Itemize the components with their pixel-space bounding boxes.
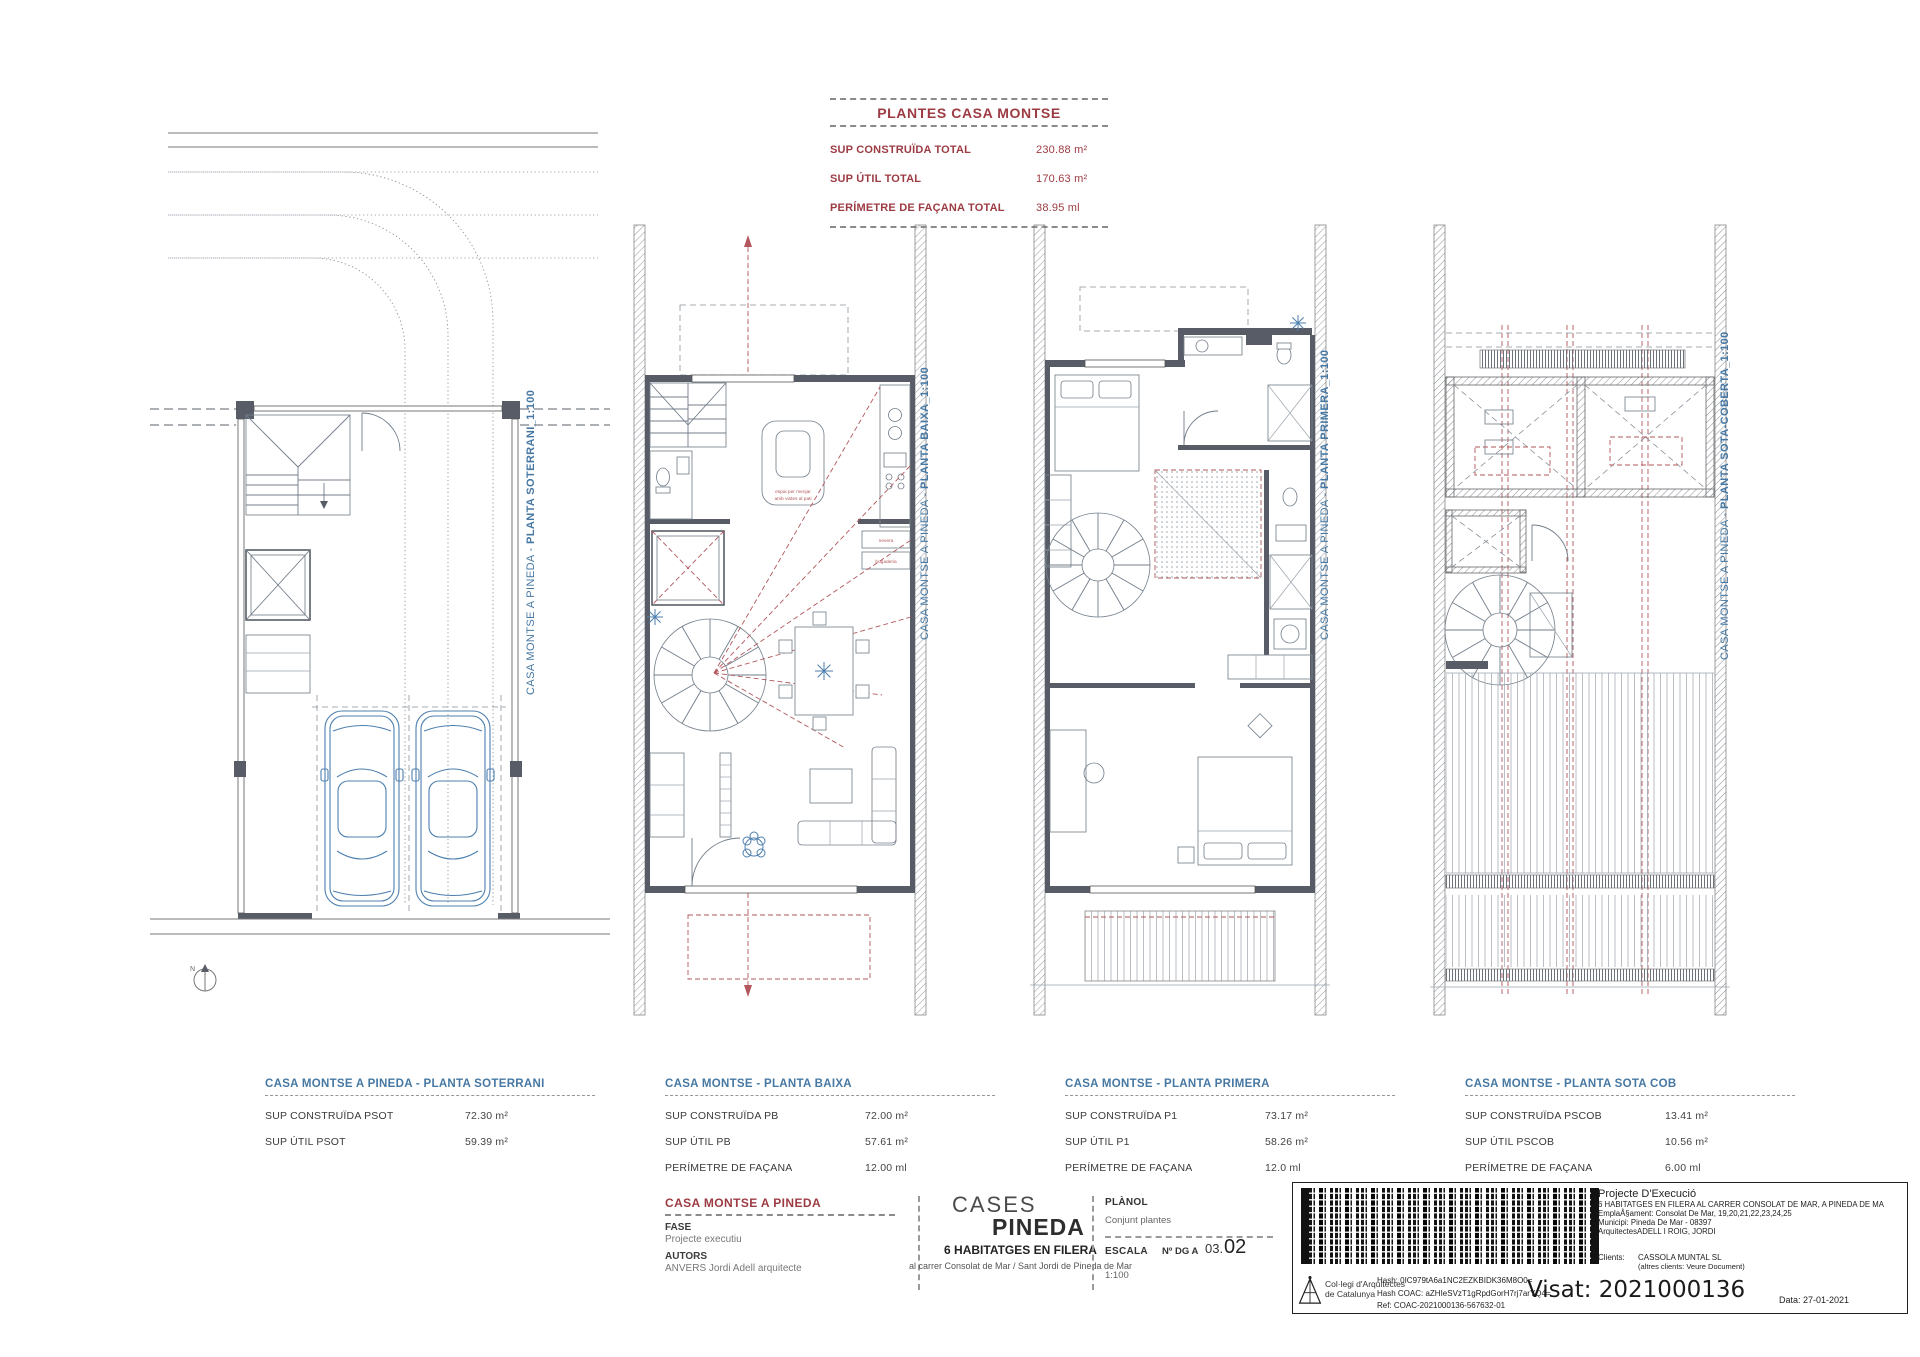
plan3-label-prefix: CASA MONTSE A PINEDA -: [1319, 489, 1331, 640]
table-header: CASA MONTSE - PLANTA BAIXA: [665, 1078, 995, 1095]
row-value: 12.0 ml: [1265, 1162, 1395, 1174]
plan4-vertical-label: CASA MONTSE A PINEDA - PLANTA SOTA-COBER…: [1718, 331, 1732, 660]
plant-icon: [815, 662, 833, 680]
project-info-block: CASA MONTSE A PINEDA FASE Projecte execu…: [665, 1196, 910, 1274]
table-primera: CASA MONTSE - PLANTA PRIMERA SUP CONSTRU…: [1065, 1078, 1395, 1174]
row-label: SUP CONSTRUÏDA PSOT: [265, 1110, 465, 1122]
row-label: SUP ÚTIL PB: [665, 1136, 865, 1148]
total-row: SUP CONSTRUÏDA TOTAL 230.88 m²: [830, 144, 1108, 156]
divider: [665, 1214, 895, 1216]
row-value: 10.56 m²: [1665, 1136, 1795, 1148]
table-row: SUP ÚTIL PSOT 59.39 m²: [265, 1136, 595, 1148]
north-arrow-icon: N: [190, 964, 216, 991]
plan4-label-prefix: CASA MONTSE A PINEDA -: [1719, 509, 1731, 660]
divider: [1065, 1095, 1395, 1096]
snowflake-icon: [647, 609, 663, 625]
row-label: SUP ÚTIL PSOT: [265, 1136, 465, 1148]
project-name: CASA MONTSE A PINEDA: [665, 1196, 910, 1210]
row-value: 59.39 m²: [465, 1136, 595, 1148]
coac-logo-icon: [1297, 1275, 1323, 1307]
table-soterrani: CASA MONTSE A PINEDA - PLANTA SOTERRANI …: [265, 1078, 595, 1148]
autors-value: ANVERS Jordi Adell arquitecte: [665, 1263, 910, 1274]
planol-label: PLÀNOL: [1105, 1197, 1148, 1208]
table-baixa: CASA MONTSE - PLANTA BAIXA SUP CONSTRUÏD…: [665, 1078, 995, 1174]
table-header: CASA MONTSE A PINEDA - PLANTA SOTERRANI: [265, 1078, 595, 1095]
plan1-label-title: PLANTA SOTERRANI_1:100: [525, 390, 537, 544]
total-row: PERÍMETRE DE FAÇANA TOTAL 38.95 ml: [830, 202, 1108, 214]
divider: [665, 1095, 995, 1096]
divider: [1092, 1196, 1094, 1290]
total-label: SUP CONSTRUÏDA TOTAL: [830, 144, 1036, 156]
stamp-project-line: 6 HABITATGES EN FILERA AL CARRER CONSOLA…: [1598, 1200, 1898, 1209]
total-value: 170.63 m²: [1036, 173, 1108, 185]
total-value: 230.88 m²: [1036, 144, 1108, 156]
car-1: [321, 711, 403, 906]
clients-value: CASSOLA MUNTAL SL: [1638, 1253, 1722, 1262]
snowflake-icon: [1290, 315, 1306, 331]
sheet-title: PLANTES CASA MONTSE: [830, 100, 1108, 125]
coac-visa-stamp: Col·legi d'Arquitectes de Catalunya Hash…: [1292, 1182, 1908, 1314]
row-value: 58.26 m²: [1265, 1136, 1395, 1148]
row-label: PERÍMETRE DE FAÇANA: [1065, 1162, 1265, 1174]
row-label: SUP ÚTIL PSCOB: [1465, 1136, 1665, 1148]
svg-text:espai per menjar: espai per menjar: [775, 489, 811, 495]
clients-note: (altres clients: Veure Document): [1638, 1262, 1745, 1271]
table-row: PERÍMETRE DE FAÇANA 12.0 ml: [1065, 1162, 1395, 1174]
row-label: PERÍMETRE DE FAÇANA: [665, 1162, 865, 1174]
table-row: SUP ÚTIL PB 57.61 m²: [665, 1136, 995, 1148]
table-row: SUP CONSTRUÏDA PSCOB 13.41 m²: [1465, 1110, 1795, 1122]
svg-text:nevera: nevera: [879, 538, 894, 544]
plan1-label-prefix: CASA MONTSE A PINEDA -: [525, 544, 537, 695]
row-label: PERÍMETRE DE FAÇANA: [1465, 1162, 1665, 1174]
stamp-project-title: Projecte D'Execució: [1598, 1188, 1898, 1200]
plan-primera-drawing: [1030, 225, 1330, 1015]
plan-sotacoberta-drawing: [1430, 225, 1730, 1015]
escala-value: 1:100: [1105, 1270, 1129, 1281]
total-label: PERÍMETRE DE FAÇANA TOTAL: [830, 202, 1036, 214]
total-label: SUP ÚTIL TOTAL: [830, 173, 1036, 185]
autors-label: AUTORS: [665, 1251, 910, 1262]
row-label: SUP CONSTRUÏDA P1: [1065, 1110, 1265, 1122]
plan3-vertical-label: CASA MONTSE A PINEDA - PLANTA PRIMERA_1:…: [1318, 350, 1332, 640]
planol-value: Conjunt plantes: [1105, 1215, 1171, 1226]
table-header: CASA MONTSE - PLANTA PRIMERA: [1065, 1078, 1395, 1095]
plan4-label-title: PLANTA SOTA-COBERTA_1:100: [1719, 331, 1731, 509]
stamp-project-block: Projecte D'Execució 6 HABITATGES EN FILE…: [1598, 1188, 1898, 1236]
number-label: Nº DG A: [1162, 1246, 1198, 1257]
row-label: SUP CONSTRUÏDA PSCOB: [1465, 1110, 1665, 1122]
visat-number: Visat: 2021000136: [1527, 1277, 1745, 1303]
divider: [1105, 1236, 1273, 1238]
totals-block: PLANTES CASA MONTSE SUP CONSTRUÏDA TOTAL…: [830, 98, 1108, 228]
plan2-label-prefix: CASA MONTSE A PINEDA -: [919, 489, 931, 640]
row-value: 72.00 m²: [865, 1110, 995, 1122]
total-row: SUP ÚTIL TOTAL 170.63 m²: [830, 173, 1108, 185]
clients-value-wrap: CASSOLA MUNTAL SL (altres clients: Veure…: [1638, 1253, 1745, 1271]
hash-coac-line: Hash COAC: aZHIeSVzT1gRpdGorH7rj7arYQ4=: [1377, 1288, 1551, 1301]
plan1-vertical-label: CASA MONTSE A PINEDA - PLANTA SOTERRANI_…: [524, 390, 538, 695]
spiral-stair: [1046, 513, 1150, 617]
total-value: 38.95 ml: [1036, 202, 1108, 214]
row-label: SUP ÚTIL P1: [1065, 1136, 1265, 1148]
car-2: [412, 711, 494, 906]
ref-line: Ref: COAC-2021000136-567632-01: [1377, 1300, 1551, 1313]
plan-soterrani-drawing: N: [150, 95, 610, 1020]
hash-block: Hash: 0IC979tA6a1NC2EZKBIDK36M8O0= Hash …: [1377, 1275, 1551, 1313]
cases-subtitle: 6 HABITATGES EN FILERA: [903, 1243, 1138, 1257]
row-value: 72.30 m²: [465, 1110, 595, 1122]
divider: [1465, 1095, 1795, 1096]
row-value: 12.00 ml: [865, 1162, 995, 1174]
escala-label: ESCALA: [1105, 1246, 1148, 1257]
fase-value: Projecte executiu: [665, 1234, 910, 1245]
row-value: 13.41 m²: [1665, 1110, 1795, 1122]
plan3-label-title: PLANTA PRIMERA_1:100: [1319, 350, 1331, 489]
table-row: PERÍMETRE DE FAÇANA 6.00 ml: [1465, 1162, 1795, 1174]
svg-text:N: N: [190, 966, 195, 973]
hash-line: Hash: 0IC979tA6a1NC2EZKBIDK36M8O0=: [1377, 1275, 1551, 1288]
table-row: SUP ÚTIL P1 58.26 m²: [1065, 1136, 1395, 1148]
plant-icon: [743, 832, 765, 857]
stamp-project-line: Municipi: Pineda De Mar - 08397: [1598, 1218, 1898, 1227]
stamp-project-line: ArquitectesADELL I ROIG, JORDI: [1598, 1227, 1898, 1236]
divider: [830, 125, 1108, 127]
table-row: PERÍMETRE DE FAÇANA 12.00 ml: [665, 1162, 995, 1174]
table-row: SUP CONSTRUÏDA PSOT 72.30 m²: [265, 1110, 595, 1122]
table-sotacoberta: CASA MONTSE - PLANTA SOTA COB SUP CONSTR…: [1465, 1078, 1795, 1174]
table-row: SUP CONSTRUÏDA P1 73.17 m²: [1065, 1110, 1395, 1122]
sheet-number: 02: [1224, 1236, 1246, 1259]
table-header: CASA MONTSE - PLANTA SOTA COB: [1465, 1078, 1795, 1095]
row-value: 6.00 ml: [1665, 1162, 1795, 1174]
pineda-word: PINEDA: [992, 1214, 1085, 1241]
fase-label: FASE: [665, 1222, 910, 1233]
table-row: SUP ÚTIL PSCOB 10.56 m²: [1465, 1136, 1795, 1148]
plan-baixa-drawing: espai per menjar amb vistes al pati neve…: [630, 225, 930, 1015]
divider: [265, 1095, 595, 1096]
clients-block: Clients: CASSOLA MUNTAL SL (altres clien…: [1598, 1253, 1745, 1271]
sheet-number-prefix: 03.: [1205, 1241, 1223, 1256]
row-value: 57.61 m²: [865, 1136, 995, 1148]
table-row: SUP CONSTRUÏDA PB 72.00 m²: [665, 1110, 995, 1122]
svg-text:amb vistes al pati: amb vistes al pati: [774, 496, 811, 502]
visa-date: Data: 27-01-2021: [1779, 1295, 1849, 1305]
stamp-project-line: EmplaÅ§ament: Consolat De Mar, 19,20,21,…: [1598, 1209, 1898, 1218]
clients-label: Clients:: [1598, 1253, 1638, 1271]
plan2-vertical-label: CASA MONTSE A PINEDA - PLANTA BAIXA_1:10…: [918, 367, 932, 640]
plan2-label-title: PLANTA BAIXA_1:100: [919, 367, 931, 489]
row-label: SUP CONSTRUÏDA PB: [665, 1110, 865, 1122]
row-value: 73.17 m²: [1265, 1110, 1395, 1122]
barcode-icon: [1301, 1188, 1599, 1264]
svg-text:bugaderia: bugaderia: [875, 559, 897, 565]
drawing-sheet: PLANTES CASA MONTSE SUP CONSTRUÏDA TOTAL…: [0, 0, 1920, 1357]
